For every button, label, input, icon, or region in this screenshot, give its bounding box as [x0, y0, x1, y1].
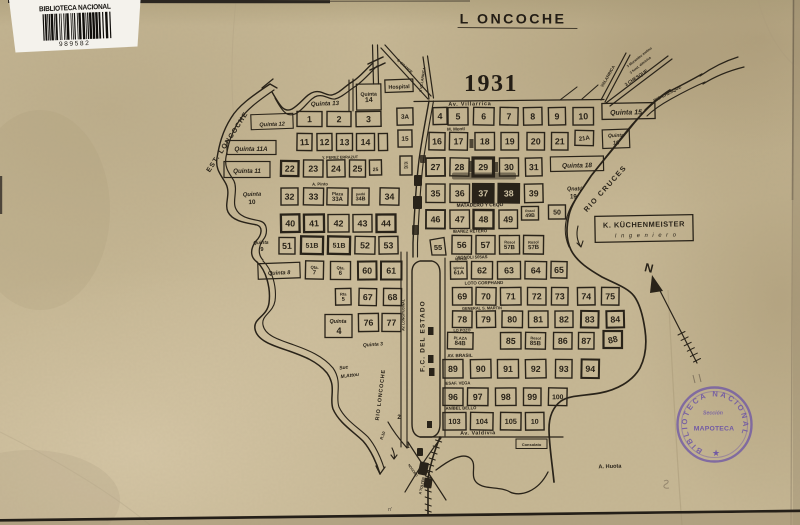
svg-text:90: 90: [476, 364, 486, 374]
svg-text:Plaza: Plaza: [332, 191, 344, 196]
svg-text:4: 4: [437, 111, 442, 121]
svg-text:989582: 989582: [59, 40, 91, 48]
svg-text:GENERAL S. MARTIN: GENERAL S. MARTIN: [462, 305, 502, 311]
svg-text:7: 7: [507, 111, 512, 121]
svg-text:ESAF. VEGA: ESAF. VEGA: [445, 380, 470, 385]
svg-text:56: 56: [457, 240, 467, 250]
svg-text:57B: 57B: [504, 245, 516, 251]
svg-text:57B: 57B: [528, 245, 540, 251]
svg-text:9: 9: [260, 247, 263, 253]
svg-text:9: 9: [554, 111, 559, 121]
svg-text:Av. Valdivia: Av. Valdivia: [460, 430, 496, 437]
svg-text:10: 10: [248, 199, 256, 206]
svg-text:83: 83: [585, 314, 595, 324]
svg-text:Quinta 11A: Quinta 11A: [234, 146, 268, 153]
svg-text:M. Montí: M. Montí: [447, 126, 466, 132]
svg-text:77: 77: [386, 318, 396, 328]
svg-text:96: 96: [448, 392, 458, 402]
svg-text:19: 19: [570, 195, 577, 201]
svg-text:Quinta: Quinta: [608, 133, 624, 140]
svg-text:24: 24: [331, 164, 341, 174]
svg-text:93: 93: [559, 364, 569, 374]
svg-text:74: 74: [581, 291, 591, 301]
svg-text:65: 65: [554, 265, 564, 275]
svg-text:Qta.: Qta.: [336, 265, 344, 270]
svg-text:1: 1: [307, 114, 312, 124]
svg-text:103: 103: [448, 417, 460, 426]
svg-text:A. Pinto: A. Pinto: [312, 181, 328, 186]
svg-text:13: 13: [339, 137, 349, 147]
svg-text:17: 17: [454, 136, 464, 146]
svg-text:10: 10: [531, 419, 539, 426]
svg-text:39: 39: [529, 188, 539, 198]
svg-text:104: 104: [475, 417, 488, 426]
svg-text:70: 70: [481, 291, 491, 301]
svg-text:4: 4: [336, 326, 341, 336]
svg-text:75: 75: [605, 291, 615, 301]
svg-text:Quinta 15: Quinta 15: [610, 109, 642, 117]
svg-text:41: 41: [309, 218, 319, 228]
svg-text:20: 20: [531, 136, 541, 146]
svg-text:36: 36: [455, 188, 465, 198]
svg-text:85B: 85B: [530, 341, 542, 348]
svg-text:105: 105: [505, 417, 517, 426]
svg-text:Quinta: Quinta: [253, 240, 269, 247]
svg-text:85: 85: [506, 336, 516, 346]
svg-text:Hospital: Hospital: [388, 84, 410, 91]
svg-text:15: 15: [401, 136, 409, 143]
svg-text:49: 49: [503, 214, 513, 224]
svg-text:12: 12: [319, 137, 329, 147]
svg-text:34: 34: [385, 192, 395, 202]
svg-text:Qnató: Qnató: [567, 187, 583, 193]
svg-text:Consolato: Consolato: [522, 442, 542, 447]
svg-text:37: 37: [478, 188, 488, 198]
svg-text:30: 30: [504, 162, 514, 172]
svg-text:29: 29: [478, 162, 488, 172]
svg-text:50: 50: [553, 209, 561, 216]
svg-text:81: 81: [533, 314, 543, 324]
svg-text:38: 38: [504, 188, 514, 198]
svg-text:86: 86: [558, 336, 568, 346]
svg-text:43: 43: [358, 218, 368, 228]
svg-text:98: 98: [501, 392, 511, 402]
svg-text:6: 6: [481, 111, 486, 121]
svg-text:AV. BRASIL: AV. BRASIL: [447, 353, 473, 358]
svg-text:62: 62: [477, 265, 487, 275]
svg-text:25: 25: [352, 164, 362, 174]
svg-text:Quinta 12: Quinta 12: [259, 122, 286, 129]
svg-text:92: 92: [531, 364, 541, 374]
svg-text:28: 28: [455, 162, 465, 172]
svg-text:16: 16: [613, 140, 619, 146]
svg-text:82: 82: [559, 314, 569, 324]
svg-text:51B: 51B: [332, 243, 345, 250]
svg-text:32: 32: [284, 191, 294, 201]
svg-text:22: 22: [285, 164, 295, 174]
svg-text:89: 89: [448, 364, 458, 374]
svg-text:47: 47: [455, 214, 465, 224]
svg-text:49B: 49B: [525, 213, 535, 219]
svg-text:35: 35: [431, 188, 441, 198]
svg-text:46: 46: [430, 214, 440, 224]
svg-text:91: 91: [503, 364, 513, 374]
svg-text:Sección: Sección: [703, 411, 723, 417]
svg-text:25: 25: [404, 164, 409, 169]
svg-text:48: 48: [479, 214, 489, 224]
svg-text:60: 60: [362, 266, 372, 276]
svg-text:★: ★: [712, 448, 720, 458]
svg-text:33A: 33A: [332, 197, 344, 203]
svg-text:84: 84: [610, 314, 620, 324]
svg-text:55: 55: [434, 243, 442, 252]
svg-text:Quinta: Quinta: [243, 192, 262, 199]
svg-text:10: 10: [578, 111, 588, 121]
svg-text:69: 69: [457, 291, 467, 301]
svg-text:A. Huota: A. Huota: [598, 464, 622, 471]
svg-text:67: 67: [363, 292, 373, 302]
svg-text:87: 87: [581, 336, 591, 346]
svg-text:16: 16: [432, 136, 442, 146]
svg-text:51: 51: [282, 241, 292, 251]
svg-text:34B: 34B: [356, 196, 366, 202]
svg-text:72: 72: [532, 291, 542, 301]
svg-text:80: 80: [507, 314, 517, 324]
svg-text:21: 21: [555, 136, 565, 146]
svg-text:2: 2: [336, 114, 341, 124]
svg-text:40: 40: [285, 218, 295, 228]
svg-text:1931: 1931: [464, 71, 518, 97]
svg-text:Quinta 13: Quinta 13: [311, 100, 340, 108]
svg-text:Quinta 8: Quinta 8: [268, 270, 291, 277]
svg-text:78: 78: [457, 314, 467, 324]
svg-text:61A: 61A: [454, 270, 464, 276]
svg-text:LOTO CORPHAND: LOTO CORPHAND: [465, 280, 504, 286]
svg-text:100: 100: [552, 394, 564, 401]
svg-text:27: 27: [430, 162, 440, 172]
svg-text:53: 53: [384, 240, 394, 250]
svg-text:51B: 51B: [306, 243, 319, 250]
svg-text:MAPOTECA: MAPOTECA: [694, 426, 735, 433]
svg-text:25: 25: [373, 167, 379, 173]
svg-text:33: 33: [308, 192, 318, 202]
svg-text:Qta.: Qta.: [310, 265, 318, 270]
svg-text:K. KÜCHENMEISTER: K. KÜCHENMEISTER: [603, 219, 685, 229]
svg-text:52: 52: [360, 240, 370, 250]
svg-text:5: 5: [342, 297, 345, 303]
svg-text:42: 42: [333, 218, 343, 228]
svg-text:73: 73: [555, 291, 565, 301]
svg-text:п': п': [388, 507, 392, 513]
svg-text:97: 97: [473, 392, 483, 402]
svg-text:23: 23: [308, 164, 318, 174]
svg-text:63: 63: [504, 265, 514, 275]
svg-text:Quinta: Quinta: [329, 319, 346, 325]
svg-text:19: 19: [505, 136, 515, 146]
svg-text:Quinta 11: Quinta 11: [233, 168, 261, 175]
svg-text:8: 8: [530, 111, 535, 121]
svg-text:76: 76: [364, 318, 374, 328]
svg-text:18: 18: [480, 136, 490, 146]
svg-text:57: 57: [480, 240, 490, 250]
svg-text:71: 71: [506, 291, 516, 301]
svg-text:84B: 84B: [454, 341, 466, 348]
svg-text:L ONCOCHE: L ONCOCHE: [460, 12, 567, 28]
svg-text:Iglesia: Iglesia: [455, 257, 468, 261]
svg-text:61: 61: [386, 266, 396, 276]
svg-text:31: 31: [529, 162, 539, 172]
svg-text:14: 14: [365, 97, 373, 104]
svg-text:3A: 3A: [401, 114, 410, 121]
svg-text:I n g e n i e r o: I n g e n i e r o: [615, 232, 678, 239]
svg-text:5: 5: [455, 111, 460, 121]
svg-text:64: 64: [531, 265, 541, 275]
svg-text:Quinta 18: Quinta 18: [562, 162, 592, 170]
svg-text:44: 44: [381, 218, 391, 228]
svg-text:Y. PEREZ ERRAZUT: Y. PEREZ ERRAZUT: [322, 155, 359, 160]
svg-text:11: 11: [300, 137, 310, 147]
svg-text:F.C. DEL ESTADO: F.C. DEL ESTADO: [420, 300, 427, 372]
svg-text:79: 79: [481, 314, 491, 324]
svg-text:3: 3: [366, 114, 371, 124]
svg-text:68: 68: [387, 292, 397, 302]
svg-text:94: 94: [585, 364, 595, 374]
svg-text:99: 99: [527, 392, 537, 402]
svg-text:14: 14: [360, 137, 370, 147]
